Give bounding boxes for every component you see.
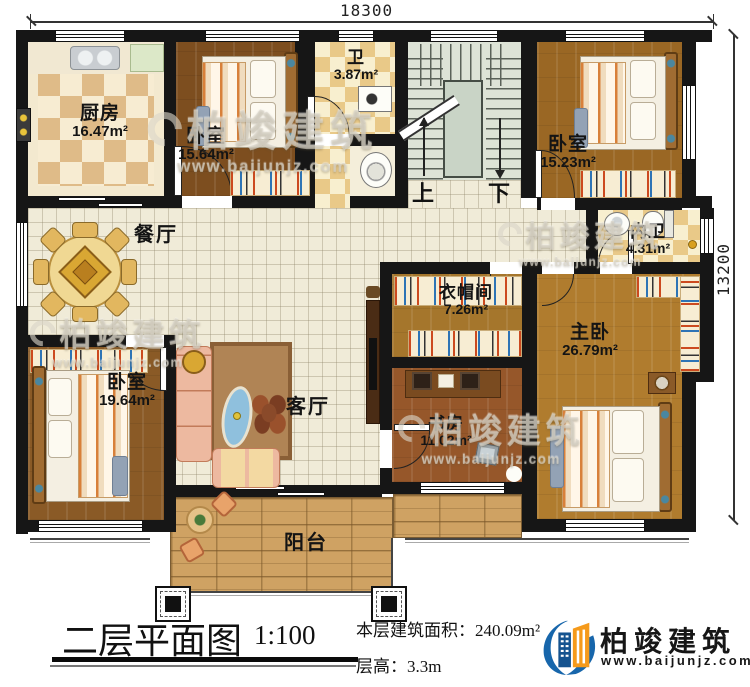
window — [338, 30, 374, 42]
floor-plan: 18300 13200 厨房16.47m² 卧室15.64m² 卫3.87m² … — [0, 0, 750, 687]
waste-bin — [506, 466, 522, 482]
dimension-top: 18300 — [340, 1, 393, 20]
wall — [682, 382, 696, 532]
kitchen-sink — [70, 46, 120, 70]
wardrobe-rack — [680, 276, 700, 372]
stair-up-label: 上 — [412, 176, 434, 208]
wardrobe-rack — [580, 170, 676, 198]
dining-chair — [33, 259, 49, 285]
doorway — [380, 430, 392, 468]
wardrobe-rack — [408, 330, 522, 357]
kitchen-stove — [16, 108, 31, 142]
room-label-balcony: 阳台 — [274, 532, 338, 554]
room-label-bedroom1: 卧室15.64m² — [158, 126, 254, 164]
room-label-kitchen: 厨房16.47m² — [52, 103, 148, 141]
room-label-bath: 卫3.87m² — [316, 48, 396, 83]
window — [565, 519, 645, 532]
sill-line — [30, 538, 150, 540]
dimension-ext — [713, 14, 714, 29]
eave-line — [405, 538, 689, 540]
floor-area-text: 本层建筑面积：240.09m² — [356, 616, 540, 641]
room-label-inner-bath: 内卫4.31m² — [606, 222, 690, 257]
tv — [369, 338, 377, 390]
stair-down-arrow — [499, 118, 501, 176]
window — [565, 30, 645, 42]
room-label-cloakroom: 衣帽间7.26m² — [416, 283, 516, 318]
doorway — [541, 198, 575, 210]
brand-site: www.baijunjz.com — [601, 653, 750, 668]
stair-up-arrowhead — [419, 112, 429, 126]
room-label-bedroom2: 卧室15.23m² — [520, 134, 616, 172]
wall — [395, 42, 408, 196]
bath-sink — [358, 86, 392, 112]
window — [16, 222, 28, 307]
loveseat — [212, 448, 280, 488]
window — [55, 30, 125, 42]
wall — [682, 196, 712, 208]
study-chair — [412, 372, 432, 390]
eave-line — [170, 595, 375, 596]
dimension-line — [733, 34, 735, 520]
plan-scale: 1:100 — [254, 620, 316, 651]
eave-line — [391, 538, 393, 593]
balcony-floor — [393, 494, 522, 538]
room-label-bedroom3: 卧室19.64m² — [78, 372, 176, 410]
balcony-table — [186, 506, 214, 534]
stair-down-label: 下 — [488, 176, 510, 208]
window — [205, 30, 300, 42]
floor-height-text: 层高：3.3m — [356, 652, 441, 677]
dining-chair — [72, 306, 98, 322]
dimension-ext — [30, 14, 31, 29]
title-underline-thin — [50, 665, 356, 667]
doorway — [542, 262, 574, 274]
wardrobe-rack — [636, 276, 682, 298]
eave-line — [170, 591, 375, 593]
stair-up-arrow — [423, 118, 425, 176]
coffee-table-decor — [233, 412, 241, 420]
toilet — [360, 152, 392, 188]
dimension-line — [30, 21, 714, 23]
doorway — [126, 335, 164, 347]
brand-logo-icon — [540, 616, 598, 676]
nightstand — [648, 372, 676, 394]
sill-line — [30, 542, 150, 543]
desk-pad — [438, 374, 454, 388]
window — [700, 218, 714, 254]
title-underline — [52, 657, 358, 662]
room-label-study: 书房11.02m² — [398, 414, 494, 449]
doorway — [182, 196, 232, 208]
kitchen-cutting-board — [130, 44, 164, 72]
dining-chair — [72, 222, 98, 238]
dimension-right: 13200 — [714, 243, 733, 296]
bed — [546, 396, 678, 520]
study-chair — [460, 372, 480, 390]
wall — [586, 208, 598, 274]
stair-treads — [486, 58, 521, 180]
window — [430, 30, 498, 42]
window — [38, 520, 143, 532]
side-table — [182, 350, 206, 374]
plant-pot — [366, 286, 380, 298]
room-label-living: 客厅 — [276, 396, 340, 418]
wall — [350, 134, 395, 146]
room-label-master: 主卧26.79m² — [542, 322, 638, 360]
stair-landing — [443, 80, 483, 178]
wardrobe-rack — [230, 170, 310, 196]
doorway — [490, 262, 522, 274]
room-label-dining: 餐厅 — [124, 224, 188, 246]
wall — [392, 357, 522, 368]
window — [420, 482, 505, 494]
dining-chair — [121, 259, 137, 285]
eave-line — [405, 542, 689, 543]
wall — [350, 196, 408, 208]
